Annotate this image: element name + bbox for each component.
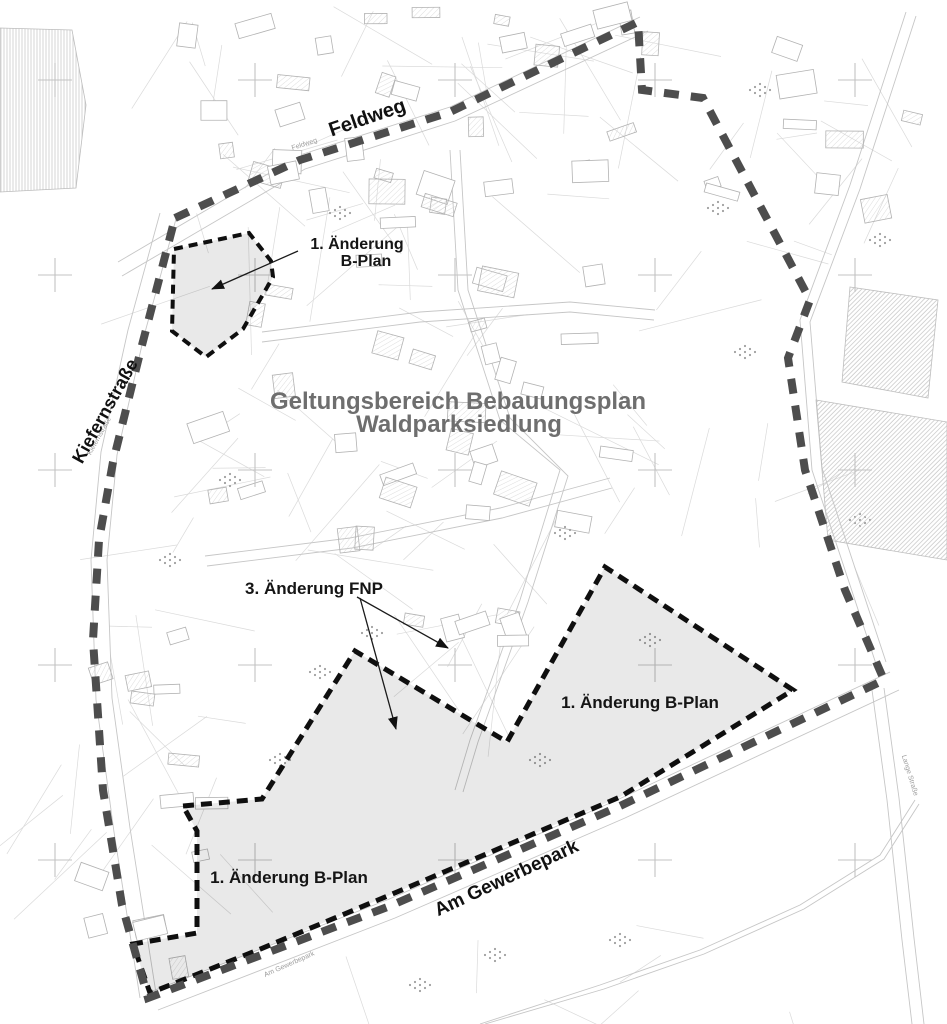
annotation-top-bplan-line2: B-Plan	[341, 253, 392, 270]
annotation-fnp: 3. Änderung FNP	[245, 579, 383, 598]
street-microlabel-am-gewerbepark: Am Gewerbepark	[263, 950, 316, 979]
pointer-arrow	[357, 597, 448, 648]
street-microlabel-lange-strasse: Lange Straße	[900, 754, 919, 797]
street-label-kiefernstrasse: Kiefernstraße	[68, 355, 142, 466]
annotation-bottom-bplan: 1. Änderung B-Plan	[210, 868, 368, 887]
hatched-area	[0, 28, 86, 192]
annotation-top-bplan-line1: 1. Änderung	[310, 235, 403, 253]
annotation-right-bplan: 1. Änderung B-Plan	[561, 693, 719, 712]
site-plan-map: Feldweg Kiefernstraße Am Gewerbepark Lan…	[0, 0, 947, 1024]
amendment-area-top-bplan	[172, 233, 273, 357]
street-label-feldweg: Feldweg	[326, 95, 409, 142]
hatched-area	[842, 287, 938, 398]
site-plan-page: Feldweg Kiefernstraße Am Gewerbepark Lan…	[0, 0, 947, 1024]
hatched-area	[816, 400, 947, 560]
plan-title-line2: Waldparksiedlung	[356, 411, 562, 438]
